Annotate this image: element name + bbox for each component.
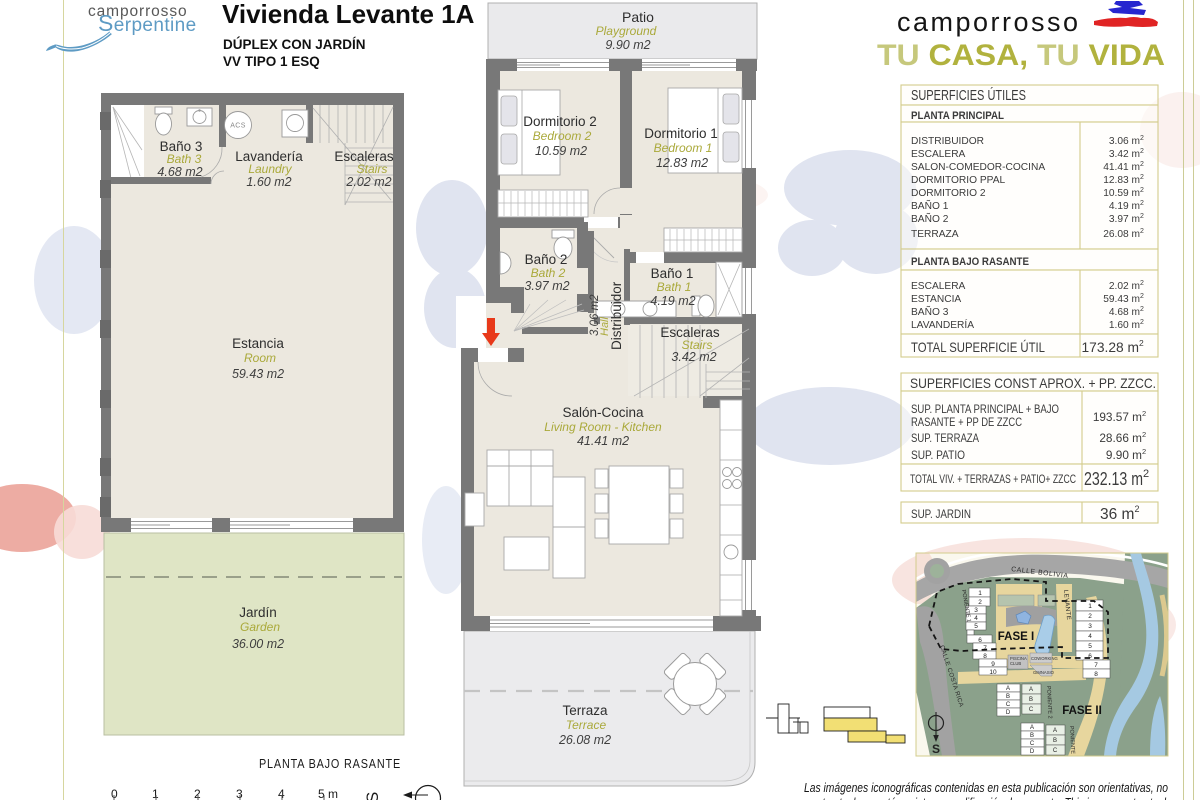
svg-text:A: A — [1029, 687, 1033, 693]
svg-text:TOTAL VIV. + TERRAZAS + PATIO+: TOTAL VIV. + TERRAZAS + PATIO+ ZZCC — [910, 472, 1076, 486]
svg-text:Jardín: Jardín — [239, 605, 277, 620]
svg-text:2: 2 — [1140, 306, 1144, 313]
svg-text:Bedroom 2: Bedroom 2 — [533, 129, 592, 143]
svg-text:B: B — [1029, 697, 1033, 703]
svg-text:S: S — [932, 742, 940, 756]
svg-text:Playground: Playground — [596, 24, 657, 38]
svg-text:SUP. PLANTA PRINCIPAL + BAJO: SUP. PLANTA PRINCIPAL + BAJO — [911, 402, 1059, 416]
svg-text:4.19 m: 4.19 m — [1109, 201, 1140, 212]
svg-text:SALON-COMEDOR-COCINA: SALON-COMEDOR-COCINA — [911, 162, 1045, 173]
svg-text:C: C — [1030, 741, 1035, 747]
svg-text:SUPERFICIES ÚTILES: SUPERFICIES ÚTILES — [911, 87, 1026, 104]
svg-text:173.28 m: 173.28 m — [1081, 340, 1139, 355]
svg-text:2: 2 — [1088, 613, 1092, 620]
svg-text:S: S — [363, 792, 382, 800]
svg-text:3.42 m2: 3.42 m2 — [671, 350, 716, 364]
svg-text:Baño 1: Baño 1 — [651, 266, 694, 281]
svg-text:ACS: ACS — [230, 123, 246, 130]
svg-text:B: B — [1053, 738, 1057, 744]
svg-text:FASE II: FASE II — [1062, 705, 1102, 717]
svg-text:2: 2 — [1140, 148, 1144, 155]
svg-text:9.90 m: 9.90 m — [1106, 448, 1142, 462]
svg-text:12.83 m: 12.83 m — [1103, 175, 1140, 186]
svg-text:2.02 m2: 2.02 m2 — [345, 175, 391, 189]
svg-text:A: A — [1053, 728, 1057, 734]
svg-text:TU CASA, TU VIDA: TU CASA, TU VIDA — [877, 39, 1165, 72]
svg-text:Dormitorio 1: Dormitorio 1 — [644, 126, 718, 141]
svg-text:2: 2 — [1142, 430, 1146, 439]
svg-text:2: 2 — [1143, 468, 1149, 480]
svg-text:C: C — [1006, 702, 1011, 708]
svg-text:BAÑO 2: BAÑO 2 — [911, 212, 949, 225]
svg-text:2: 2 — [1140, 174, 1144, 181]
svg-text:12.83 m2: 12.83 m2 — [656, 156, 708, 170]
svg-text:contractuales y están sujetas: contractuales y están sujetas a modifica… — [806, 796, 1167, 800]
svg-text:2: 2 — [1139, 338, 1144, 348]
svg-text:ESTANCIA: ESTANCIA — [911, 294, 961, 305]
svg-text:59.43 m: 59.43 m — [1103, 294, 1140, 305]
svg-text:BAÑO 1: BAÑO 1 — [911, 199, 949, 212]
svg-text:Terraza: Terraza — [562, 703, 608, 718]
svg-text:3.42 m: 3.42 m — [1109, 149, 1140, 160]
svg-text:CLUB: CLUB — [1010, 661, 1021, 666]
svg-text:1: 1 — [1088, 603, 1092, 610]
svg-text:3: 3 — [1088, 623, 1092, 630]
svg-text:Bath 2: Bath 2 — [531, 266, 566, 280]
svg-text:2: 2 — [1142, 447, 1146, 456]
svg-text:BAÑO 3: BAÑO 3 — [911, 305, 949, 318]
svg-text:Bedroom 1: Bedroom 1 — [654, 141, 713, 155]
svg-text:8: 8 — [1094, 671, 1098, 678]
svg-text:2: 2 — [1140, 280, 1144, 287]
svg-text:C: C — [1029, 707, 1034, 713]
svg-text:2: 2 — [1140, 200, 1144, 207]
svg-text:4.68 m: 4.68 m — [1109, 307, 1140, 318]
svg-text:SUPERFICIES CONST APROX. + PP.: SUPERFICIES CONST APROX. + PP. ZZCC. — [910, 376, 1156, 391]
svg-text:5: 5 — [974, 623, 978, 630]
svg-text:2: 2 — [1140, 293, 1144, 300]
svg-text:6: 6 — [1088, 653, 1092, 660]
svg-text:Garden: Garden — [240, 620, 280, 634]
svg-text:Vivienda Levante 1A: Vivienda Levante 1A — [222, 0, 475, 29]
svg-text:PLANTA BAJO RASANTE: PLANTA BAJO RASANTE — [911, 256, 1029, 268]
svg-text:A: A — [1006, 686, 1010, 692]
svg-text:SUP. JARDIN: SUP. JARDIN — [911, 507, 971, 521]
svg-text:10.59 m: 10.59 m — [1103, 188, 1140, 199]
svg-text:DÚPLEX CON JARDÍN: DÚPLEX CON JARDÍN — [223, 37, 366, 52]
svg-text:2.02 m: 2.02 m — [1109, 281, 1140, 292]
svg-text:3.97 m: 3.97 m — [1109, 214, 1140, 225]
svg-text:4: 4 — [974, 615, 978, 622]
svg-text:9: 9 — [991, 661, 995, 668]
svg-text:2: 2 — [1140, 319, 1144, 326]
svg-text:Dormitorio 2: Dormitorio 2 — [523, 114, 597, 129]
svg-text:Estancia: Estancia — [232, 336, 284, 351]
svg-text:Stairs: Stairs — [357, 162, 388, 176]
svg-text:26.08 m: 26.08 m — [1103, 229, 1140, 240]
svg-text:41.41 m: 41.41 m — [1103, 162, 1140, 173]
svg-text:Room: Room — [244, 351, 276, 365]
svg-text:A: A — [1030, 725, 1034, 731]
svg-text:Patio: Patio — [622, 9, 654, 25]
svg-text:FASE I: FASE I — [998, 631, 1034, 643]
svg-text:2: 2 — [1140, 213, 1144, 220]
svg-text:DORMITORIO 2: DORMITORIO 2 — [911, 188, 986, 199]
svg-text:41.41 m2: 41.41 m2 — [577, 434, 629, 448]
svg-text:10.59 m2: 10.59 m2 — [535, 144, 587, 158]
svg-text:26.08 m2: 26.08 m2 — [558, 733, 611, 747]
svg-text:Living Room - Kitchen: Living Room - Kitchen — [544, 420, 662, 434]
svg-text:ESCALERA: ESCALERA — [911, 149, 966, 160]
svg-text:B: B — [1006, 694, 1010, 700]
svg-text:Las imágenes iconográficas con: Las imágenes iconográficas contenidas en… — [804, 781, 1168, 795]
svg-text:Bath 1: Bath 1 — [657, 280, 692, 294]
svg-text:2: 2 — [1142, 409, 1146, 418]
svg-text:4: 4 — [1088, 633, 1092, 640]
svg-text:1.60 m: 1.60 m — [1109, 320, 1140, 331]
svg-text:4.68 m2: 4.68 m2 — [157, 165, 202, 179]
svg-text:7: 7 — [983, 645, 987, 652]
svg-text:2: 2 — [1140, 161, 1144, 168]
svg-text:D: D — [1006, 710, 1011, 716]
svg-text:3.97 m2: 3.97 m2 — [524, 279, 569, 293]
svg-text:10: 10 — [989, 669, 997, 676]
svg-text:5 m: 5 m — [318, 787, 338, 800]
svg-text:8: 8 — [983, 653, 987, 660]
svg-text:Distribuidor: Distribuidor — [609, 281, 624, 350]
svg-text:DISTRIBUIDOR: DISTRIBUIDOR — [911, 136, 984, 147]
svg-text:2: 2 — [1135, 504, 1140, 514]
svg-text:3.06 m: 3.06 m — [1109, 136, 1140, 147]
svg-text:28.66 m: 28.66 m — [1099, 431, 1142, 445]
svg-text:C: C — [1053, 748, 1058, 754]
svg-text:D: D — [1030, 749, 1035, 755]
svg-text:2: 2 — [1140, 187, 1144, 194]
svg-text:36.00 m2: 36.00 m2 — [232, 637, 284, 651]
svg-text:ESCALERA: ESCALERA — [911, 281, 966, 292]
svg-text:7: 7 — [1094, 662, 1098, 669]
svg-text:B: B — [1030, 733, 1034, 739]
svg-text:SUP. TERRAZA: SUP. TERRAZA — [911, 431, 979, 445]
svg-text:232.13 m: 232.13 m — [1084, 468, 1143, 489]
svg-text:3: 3 — [974, 607, 978, 614]
svg-text:Baño 2: Baño 2 — [525, 252, 568, 267]
svg-text:Terrace: Terrace — [566, 718, 607, 732]
svg-text:GIMNASIO: GIMNASIO — [1033, 670, 1055, 675]
svg-text:6: 6 — [978, 637, 982, 644]
svg-text:Laundry: Laundry — [248, 162, 292, 176]
svg-text:RASANTE + PP DE ZZCC: RASANTE + PP DE ZZCC — [911, 415, 1022, 429]
svg-text:camporrosso: camporrosso — [897, 7, 1081, 37]
svg-text:LAVANDERÍA: LAVANDERÍA — [911, 318, 974, 331]
svg-text:Salón-Cocina: Salón-Cocina — [562, 405, 644, 420]
svg-text:36 m: 36 m — [1100, 506, 1134, 523]
svg-text:SUP. PATIO: SUP. PATIO — [911, 448, 965, 462]
svg-text:Bath 3: Bath 3 — [167, 152, 202, 166]
svg-text:PLANTA BAJO RASANTE: PLANTA BAJO RASANTE — [259, 756, 401, 771]
svg-text:PLANTA PRINCIPAL: PLANTA PRINCIPAL — [911, 110, 1004, 122]
svg-text:TERRAZA: TERRAZA — [911, 229, 959, 240]
svg-text:4.19 m2: 4.19 m2 — [650, 294, 695, 308]
svg-text:2: 2 — [978, 599, 982, 606]
svg-text:59.43 m2: 59.43 m2 — [232, 367, 284, 381]
svg-text:COWORKING: COWORKING — [1031, 656, 1058, 661]
svg-text:193.57 m: 193.57 m — [1093, 410, 1142, 424]
svg-text:1: 1 — [978, 590, 982, 597]
svg-text:TOTAL SUPERFICIE ÚTIL: TOTAL SUPERFICIE ÚTIL — [911, 339, 1045, 355]
svg-text:VV TIPO 1 ESQ: VV TIPO 1 ESQ — [223, 54, 320, 69]
svg-text:1.60 m2: 1.60 m2 — [246, 175, 291, 189]
svg-text:2: 2 — [1140, 135, 1144, 142]
svg-text:DORMITORIO PPAL: DORMITORIO PPAL — [911, 175, 1005, 186]
svg-text:5: 5 — [1088, 643, 1092, 650]
svg-text:2: 2 — [1140, 228, 1144, 235]
svg-text:9.90 m2: 9.90 m2 — [605, 38, 650, 52]
